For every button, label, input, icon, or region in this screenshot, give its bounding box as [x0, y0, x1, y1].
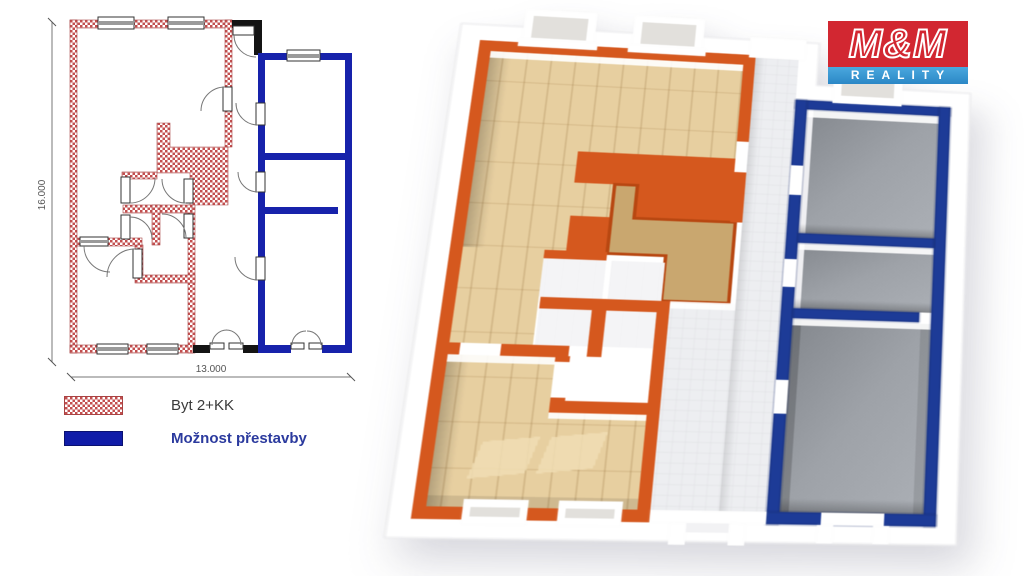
walls-reconstruction-blue — [258, 53, 352, 353]
dimension-width: 13.000 — [67, 364, 355, 381]
legend-label-reconstruction: Možnost přestavby — [171, 430, 307, 447]
legend-swatch-solid-blue — [64, 431, 123, 446]
dimension-width-label: 13.000 — [196, 364, 227, 375]
door — [236, 103, 265, 125]
legend: Byt 2+KK Možnost přestavby — [64, 396, 394, 462]
window — [80, 237, 108, 246]
door — [162, 179, 193, 203]
legend-label-apartment: Byt 2+KK — [171, 397, 234, 414]
window — [287, 50, 320, 61]
blue-door-jamb — [816, 525, 833, 544]
door — [121, 215, 152, 239]
floor-plan-2d: 16.000 13.000 — [0, 0, 410, 390]
double-door-entry — [210, 330, 243, 354]
blue-room-3-3d — [780, 320, 931, 515]
door — [162, 214, 193, 238]
legend-item-apartment: Byt 2+KK — [64, 396, 394, 415]
brand-logo: M&M REALITY — [828, 21, 968, 84]
dimension-height: 16.000 — [37, 18, 56, 366]
logo-reality-bar: REALITY — [828, 67, 968, 84]
door — [233, 26, 256, 57]
door — [121, 177, 155, 203]
corridor-top-box — [749, 37, 807, 60]
blue-door-jamb — [872, 526, 889, 545]
window — [98, 17, 134, 29]
legend-swatch-hatched-red — [64, 396, 123, 415]
walls-apartment-hatched — [70, 20, 232, 353]
window — [147, 344, 178, 354]
dimension-height-label: 16.000 — [37, 179, 48, 210]
door — [84, 246, 110, 272]
door — [238, 172, 265, 192]
legend-item-reconstruction: Možnost přestavby — [64, 430, 394, 447]
blue-room-1-3d — [798, 109, 938, 238]
hall-strip-3d — [448, 247, 545, 357]
logo-mm-text: M&M — [828, 21, 968, 67]
window — [168, 17, 204, 29]
real-estate-floorplan-image: 16.000 13.000 — [0, 0, 1024, 576]
floor-plan-3d — [377, 0, 979, 570]
double-door-blue — [291, 331, 322, 354]
door — [107, 249, 142, 278]
door — [201, 87, 232, 111]
door — [235, 257, 265, 280]
window — [97, 344, 128, 354]
